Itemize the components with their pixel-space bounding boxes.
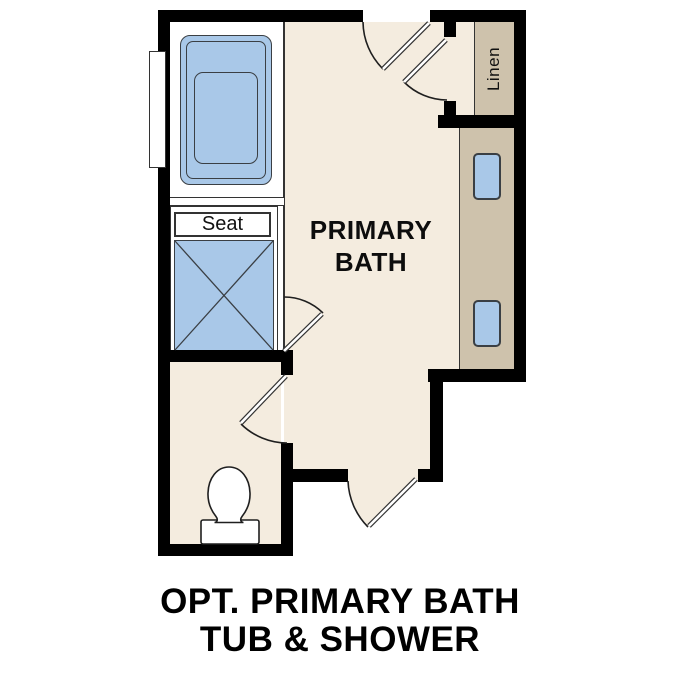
tub-deck-edge [170, 197, 284, 206]
wall-right-upper [514, 10, 526, 382]
sink-icon [473, 300, 501, 347]
caption-line1: OPT. PRIMARY BATH [0, 583, 680, 621]
wall-divider-lower [281, 443, 293, 556]
entry-door-gap-floor [348, 469, 418, 482]
wall-top-left [158, 10, 363, 22]
sink-icon [473, 153, 501, 200]
wall-right-lower [430, 369, 443, 481]
seat-label-text: Seat [202, 213, 243, 236]
seat-label: Seat [174, 212, 271, 237]
floor-plan: Seat Linen PRIMARY BATH OPT. PRIMARY BAT… [0, 0, 687, 687]
entry-door-swing-floor [348, 479, 417, 527]
wall-linen-jamb-bottom [444, 101, 456, 117]
bathtub-basin [194, 72, 258, 164]
window-icon [149, 51, 166, 168]
linen-label: Linen [474, 22, 514, 115]
primary-bath-floor-lower [284, 350, 443, 469]
wall-toilet-door-jamb [281, 350, 293, 375]
plan-caption: OPT. PRIMARY BATH TUB & SHOWER [0, 583, 680, 659]
linen-label-text: Linen [484, 46, 504, 90]
door-swing-icon [348, 481, 368, 527]
wall-top-right [430, 10, 526, 22]
wall-linen-jamb-top [444, 22, 456, 37]
room-label-line1: PRIMARY [291, 214, 451, 246]
shower-icon [174, 240, 274, 351]
wall-bottom-right-of-door [418, 469, 443, 482]
caption-line2: TUB & SHOWER [0, 621, 680, 659]
room-label: PRIMARY BATH [291, 214, 451, 278]
room-label-line2: BATH [291, 246, 451, 278]
wall-toilet-room-top [158, 350, 293, 362]
primary-bath-floor [284, 22, 460, 369]
floor-edge-line [283, 22, 285, 352]
wall-toilet-room-bottom [158, 544, 293, 556]
toilet-room-floor [170, 362, 281, 544]
entry-door-leaf [369, 479, 416, 526]
